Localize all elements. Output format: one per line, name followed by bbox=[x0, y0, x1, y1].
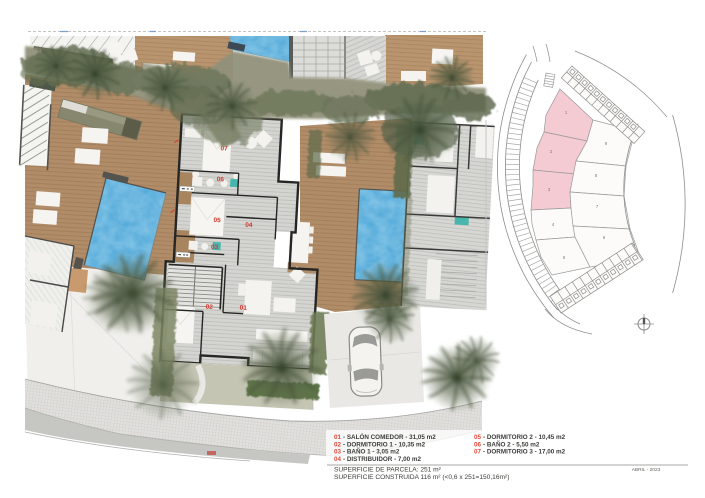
svg-text:- DORMITORIO 1 - 10,35 m2: - DORMITORIO 1 - 10,35 m2 bbox=[343, 441, 426, 448]
svg-text:06: 06 bbox=[474, 441, 482, 448]
svg-text:05: 05 bbox=[213, 217, 221, 224]
svg-text:01: 01 bbox=[334, 434, 342, 441]
svg-text:ABRIL - 2023: ABRIL - 2023 bbox=[632, 467, 661, 473]
svg-text:04: 04 bbox=[334, 456, 342, 463]
svg-text:02: 02 bbox=[205, 304, 213, 311]
svg-text:07: 07 bbox=[474, 449, 482, 456]
svg-text:- DISTRIBUIDOR - 7,00 m2: - DISTRIBUIDOR - 7,00 m2 bbox=[343, 456, 422, 463]
svg-text:- DORMITORIO 3 - 17,00 m2: - DORMITORIO 3 - 17,00 m2 bbox=[483, 449, 566, 456]
svg-text:- BAÑO 2 - 5,50 m2: - BAÑO 2 - 5,50 m2 bbox=[483, 439, 540, 448]
svg-text:04: 04 bbox=[245, 222, 253, 229]
svg-text:03: 03 bbox=[211, 244, 219, 251]
svg-text:SUPERFICIE CONSTRUIDA 116 m² (: SUPERFICIE CONSTRUIDA 116 m² (<0,6 x 251… bbox=[334, 474, 509, 481]
svg-text:05: 05 bbox=[474, 434, 482, 441]
svg-text:06: 06 bbox=[217, 176, 225, 183]
svg-text:02: 02 bbox=[334, 441, 342, 448]
svg-text:- BAÑO 1 - 3,05 m2: - BAÑO 1 - 3,05 m2 bbox=[343, 447, 400, 456]
svg-text:- SALÓN COMEDOR - 31,05 m2: - SALÓN COMEDOR - 31,05 m2 bbox=[343, 432, 436, 441]
svg-text:SUPERFICIE DE PARCELA: 251 m²: SUPERFICIE DE PARCELA: 251 m² bbox=[334, 467, 442, 474]
svg-text:- DORMITORIO 2 - 10,45 m2: - DORMITORIO 2 - 10,45 m2 bbox=[483, 434, 566, 441]
svg-text:03: 03 bbox=[334, 449, 342, 456]
svg-text:01: 01 bbox=[239, 305, 247, 312]
